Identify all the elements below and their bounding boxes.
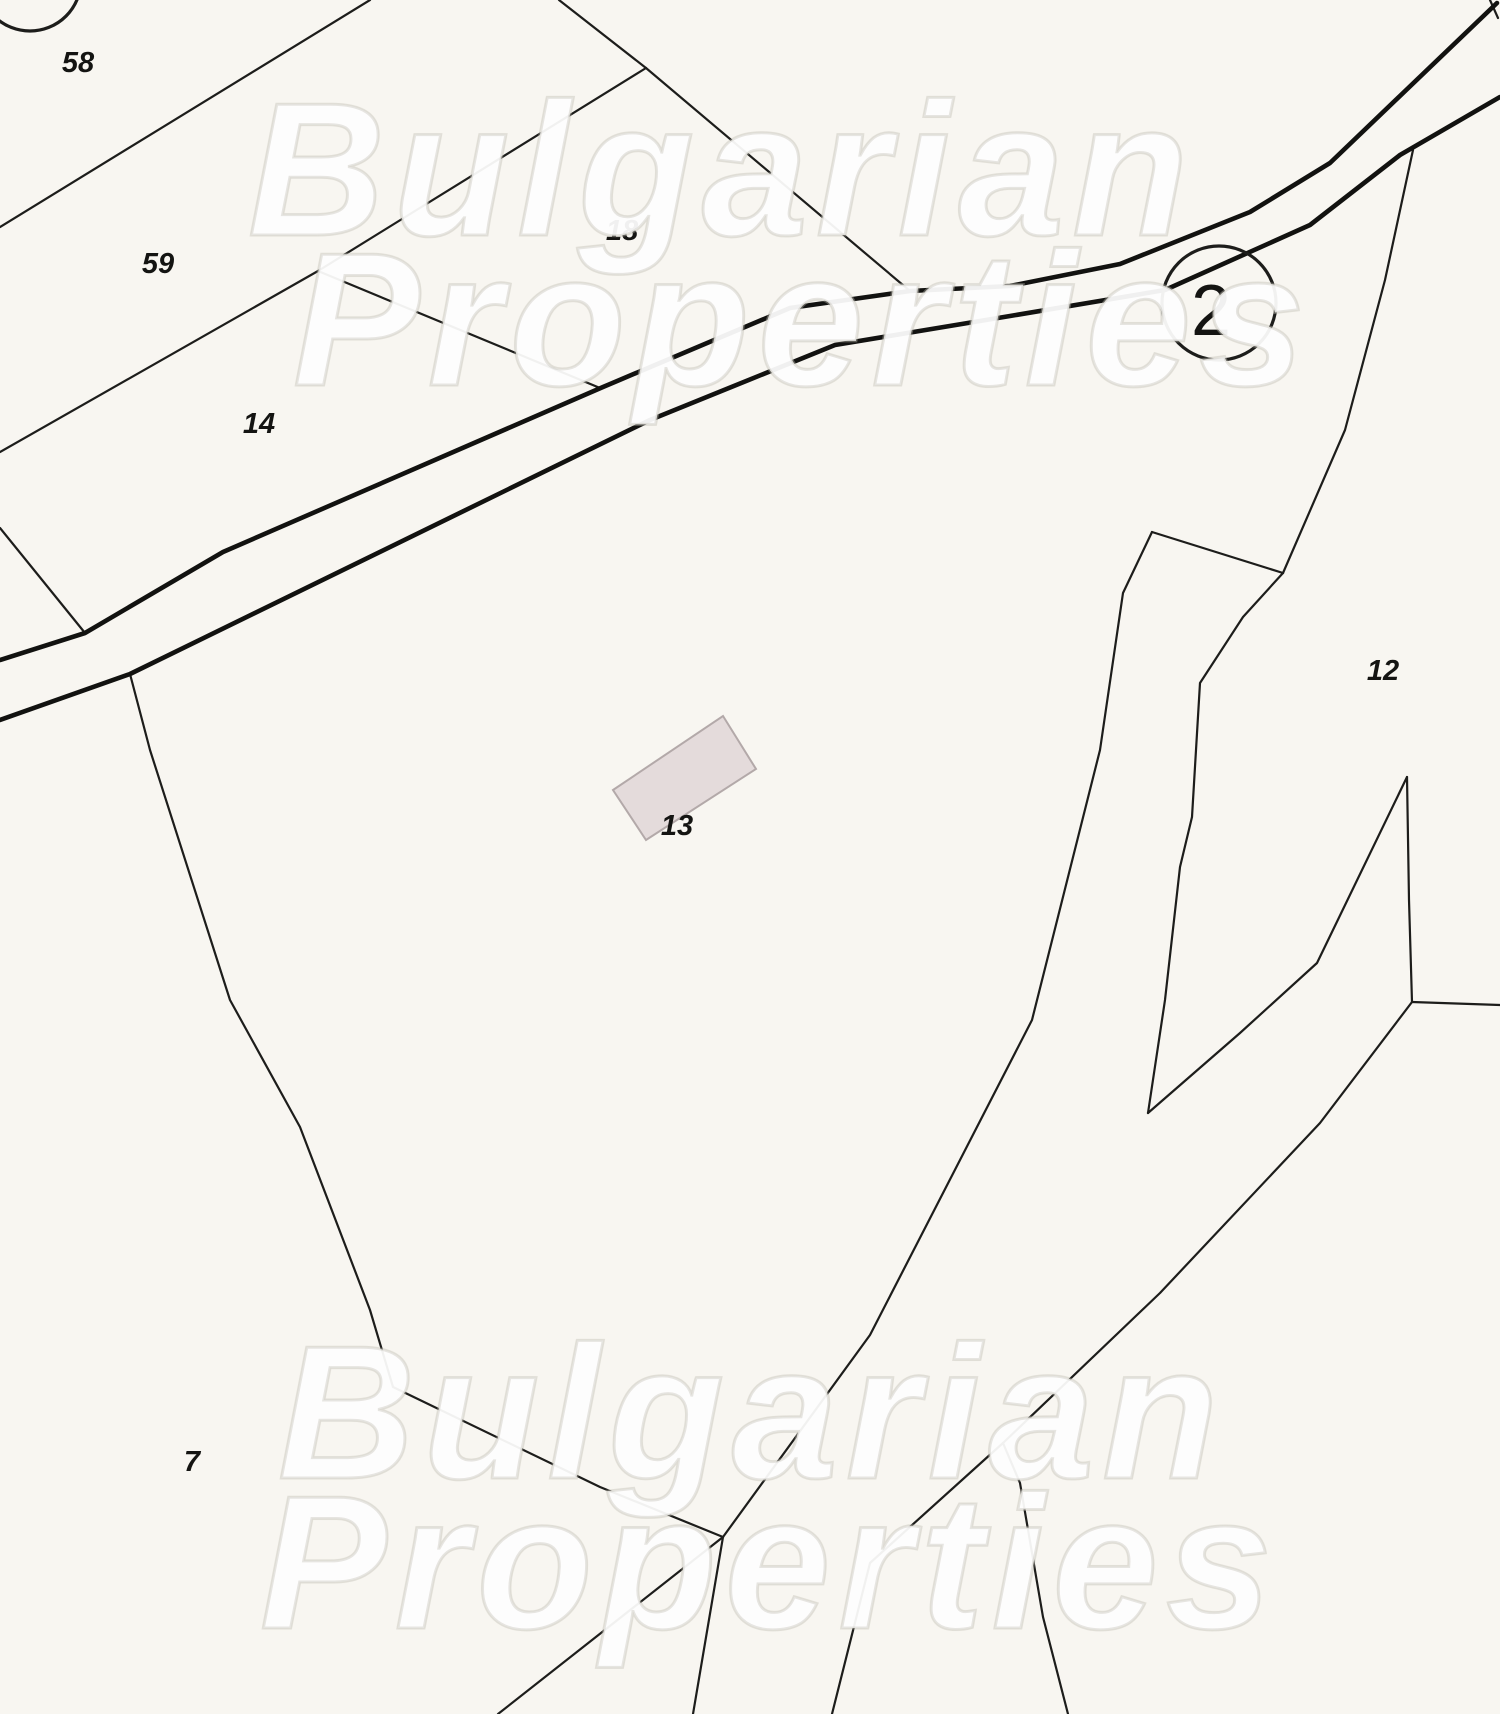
parcel-boundary-line xyxy=(1003,1002,1412,1443)
parcel-boundary-line xyxy=(1003,1443,1068,1714)
parcel-boundary-line xyxy=(559,0,646,68)
map-canvas: 25859141813127 xyxy=(0,0,1500,1714)
parcel-label-7: 7 xyxy=(184,1446,202,1478)
parcel-boundary-line xyxy=(1283,150,1413,573)
parcel-boundary-line xyxy=(646,68,910,291)
parcel-label-18: 18 xyxy=(606,215,639,247)
parcel-label-58: 58 xyxy=(62,47,95,79)
parcel-boundary-line xyxy=(693,1537,723,1714)
parcel-boundary-line xyxy=(0,528,85,633)
road-edge-upper xyxy=(0,3,1497,660)
parcel-label-14: 14 xyxy=(243,408,275,440)
parcel-label-13: 13 xyxy=(661,810,693,842)
parcel-boundary-line xyxy=(832,1443,1003,1714)
road-edge-lower xyxy=(0,97,1500,720)
parcel-boundary-line xyxy=(0,0,370,227)
parcel-boundary-line xyxy=(1148,573,1283,1113)
plot-marker-label: 2 xyxy=(1191,271,1231,351)
parcel-boundary-line xyxy=(0,68,646,452)
parcel-boundary-line xyxy=(1412,1002,1500,1005)
parcel-boundary-line xyxy=(318,271,600,388)
plot-marker-circle-partial xyxy=(0,0,81,31)
cadastral-map: 25859141813127 Bulgarian Properties Bulg… xyxy=(0,0,1500,1714)
parcel-label-59: 59 xyxy=(142,248,174,280)
parcel-boundary-line xyxy=(498,1537,723,1714)
parcel-label-12: 12 xyxy=(1367,655,1399,687)
parcel-boundary-line xyxy=(1148,777,1407,1113)
parcel-boundary-line xyxy=(1152,532,1283,573)
parcel-boundary-line xyxy=(723,532,1152,1537)
parcel-boundary-line xyxy=(1407,777,1412,1002)
